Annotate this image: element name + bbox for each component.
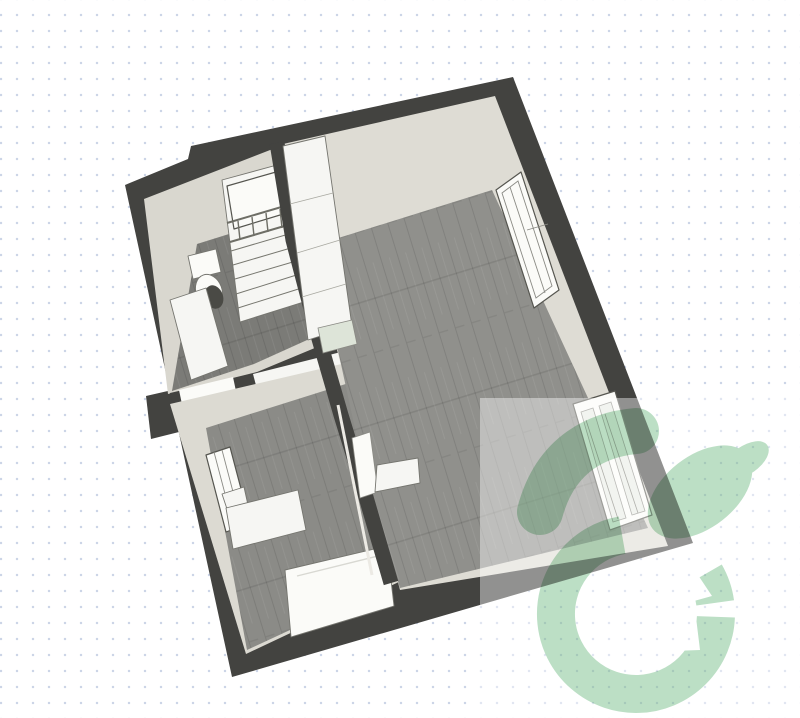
building bbox=[125, 77, 693, 677]
floor-plan-canvas[interactable] bbox=[0, 0, 800, 718]
floor-plan-render bbox=[0, 0, 800, 718]
